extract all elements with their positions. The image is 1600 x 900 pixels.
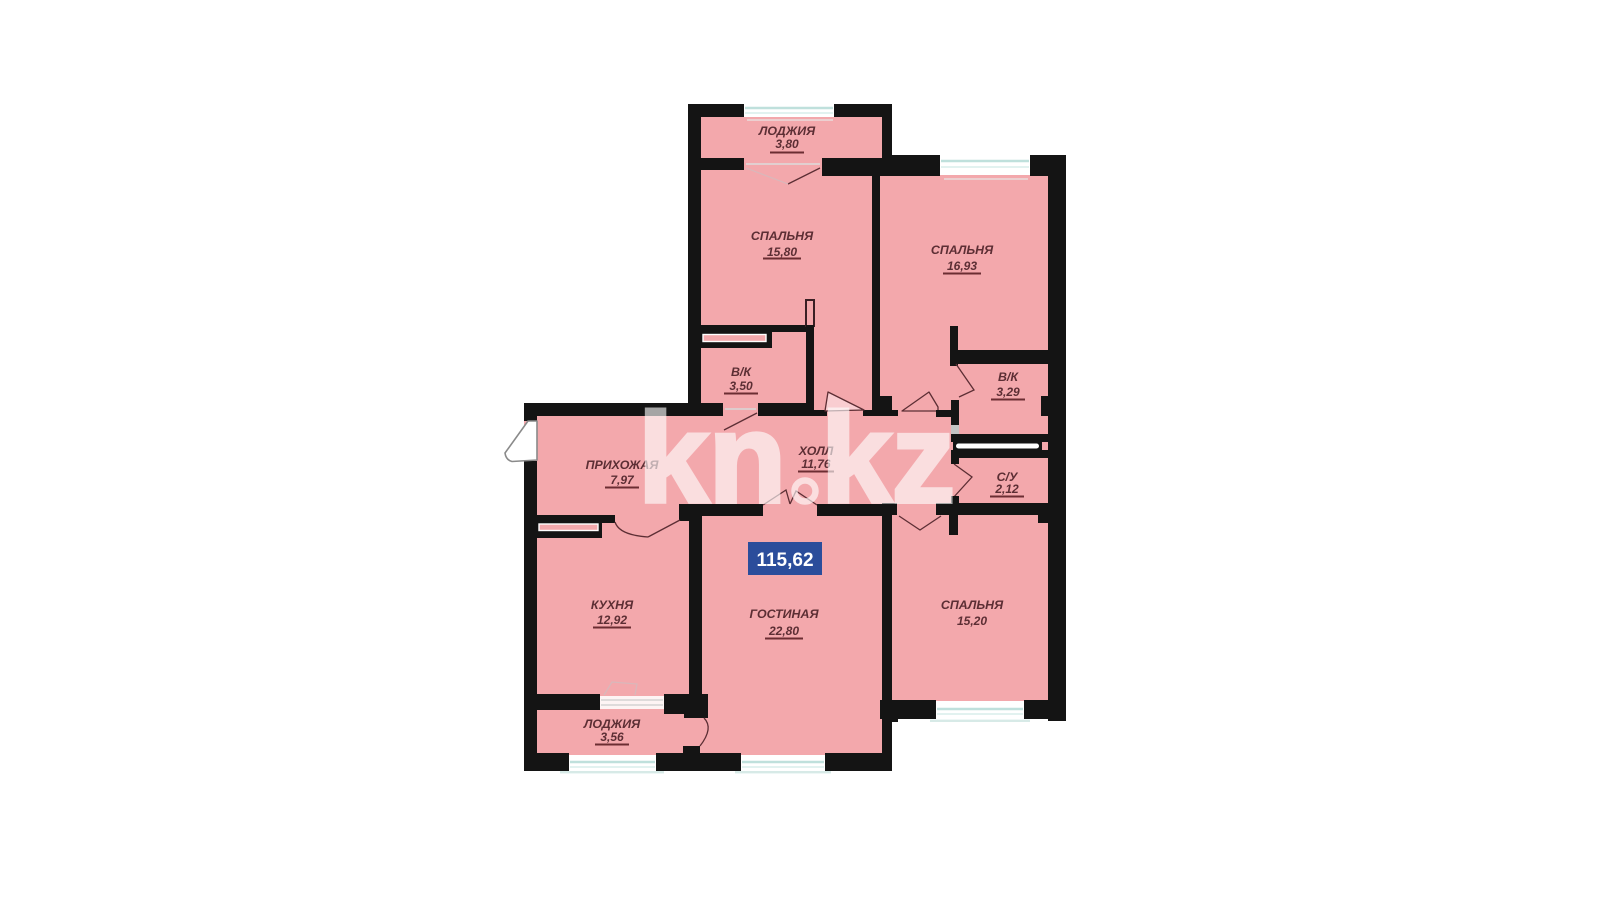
svg-text:КУХНЯ: КУХНЯ [591,598,634,612]
svg-text:В/К: В/К [998,370,1019,384]
svg-text:СПАЛЬНЯ: СПАЛЬНЯ [941,598,1004,612]
svg-text:ЛОДЖИЯ: ЛОДЖИЯ [583,717,641,731]
svg-text:ЛОДЖИЯ: ЛОДЖИЯ [758,124,816,138]
svg-text:3,80: 3,80 [775,137,799,151]
svg-text:kz: kz [821,387,955,529]
svg-text:15,80: 15,80 [767,245,797,259]
svg-text:7,97: 7,97 [610,473,635,487]
svg-text:115,62: 115,62 [756,550,813,571]
svg-text:3,56: 3,56 [600,730,624,744]
svg-text:22,80: 22,80 [768,624,799,638]
svg-text:15,20: 15,20 [957,614,987,628]
svg-text:12,92: 12,92 [597,613,627,627]
svg-text:16,93: 16,93 [947,259,977,273]
svg-text:3,29: 3,29 [996,385,1020,399]
svg-text:СПАЛЬНЯ: СПАЛЬНЯ [931,243,994,257]
svg-text:СПАЛЬНЯ: СПАЛЬНЯ [751,229,814,243]
svg-text:В/К: В/К [731,365,752,379]
svg-text:kn: kn [638,387,786,529]
svg-text:2,12: 2,12 [994,482,1019,496]
svg-text:ГОСТИНАЯ: ГОСТИНАЯ [750,607,820,621]
